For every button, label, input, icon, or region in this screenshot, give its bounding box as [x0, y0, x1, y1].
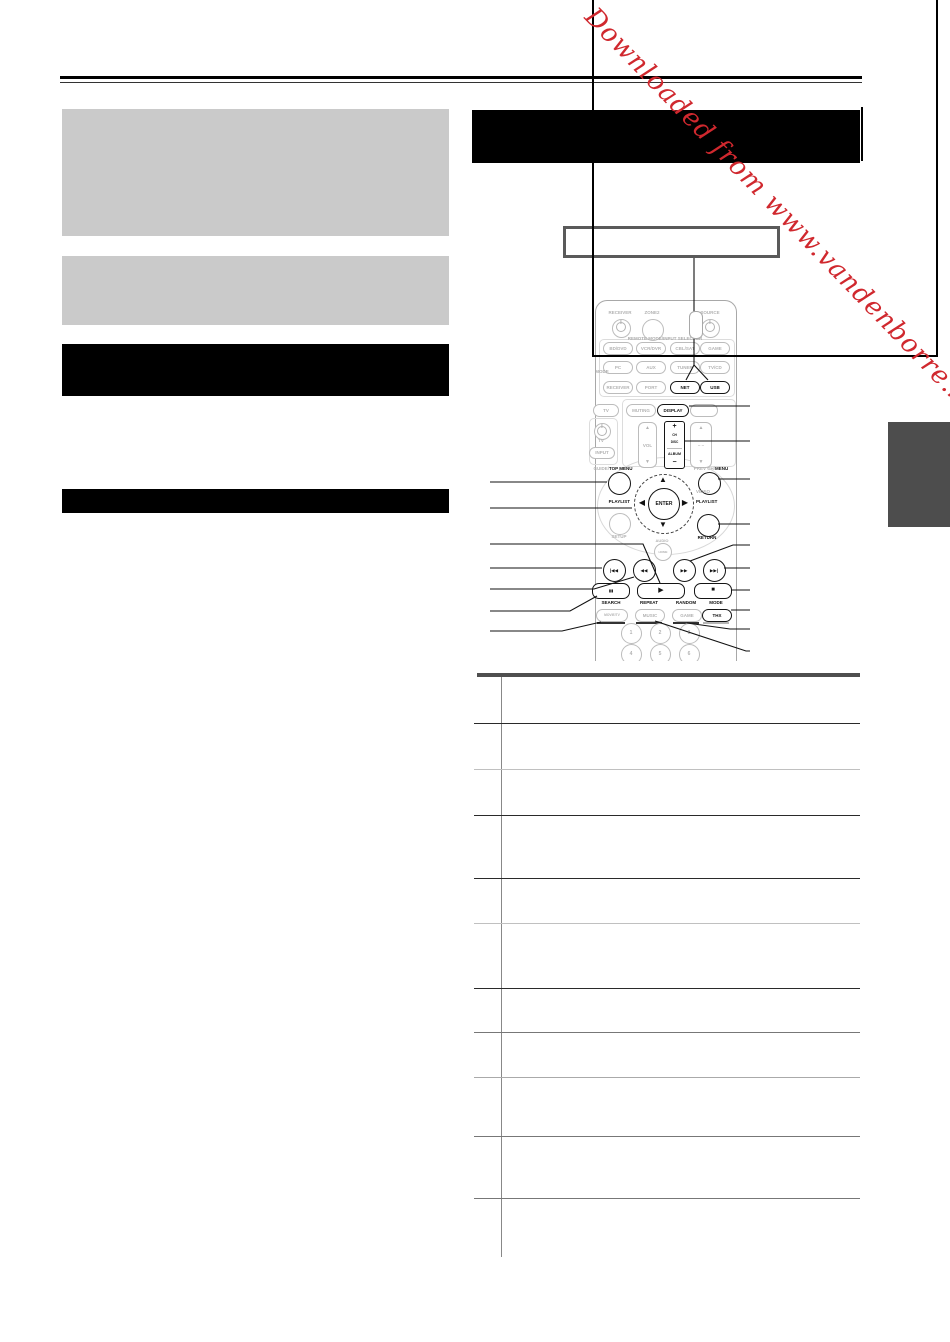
- thx-button: THX: [702, 609, 732, 622]
- tv-input-button: INPUT: [589, 447, 615, 459]
- port-button: PORT: [636, 381, 666, 394]
- album-label: ALBUM: [668, 452, 681, 456]
- return-button: [697, 514, 720, 537]
- table-row-line: [474, 923, 860, 924]
- top-menu-label: GUIDE/TOP MENU: [588, 466, 638, 471]
- dpad-left-icon: ◀: [636, 499, 648, 507]
- tuner-button: TUNER: [670, 361, 700, 374]
- guide-label: GUIDE/: [593, 466, 609, 471]
- table-row-line: [474, 815, 860, 816]
- repeat-label: REPEAT: [631, 600, 667, 605]
- table-row-line: [474, 723, 860, 724]
- table-header-bar: [477, 673, 860, 677]
- dpad-up-icon: ▲: [655, 476, 671, 484]
- tv-mode-button: TV: [593, 404, 619, 417]
- movie-tv-underline: [597, 622, 625, 625]
- top-menu-bold: TOP MENU: [609, 466, 633, 471]
- thx-underline: [703, 622, 729, 625]
- redacted-text-block: [62, 109, 449, 236]
- top-menu-button: [608, 472, 631, 495]
- illustration-crop: [585, 661, 765, 673]
- random-label: RANDOM: [668, 600, 704, 605]
- table-row-line: [474, 878, 860, 879]
- digit-3-button: 3: [679, 623, 700, 644]
- tv-cd-button: TV/CD: [700, 361, 730, 374]
- muting-button: MUTING: [626, 404, 656, 417]
- stop-button: ■: [694, 583, 732, 599]
- volume-up-icon: ▲: [645, 425, 650, 431]
- table-column-divider: [501, 677, 502, 1257]
- table-row-line: [474, 1032, 860, 1033]
- tv-label: TV: [589, 438, 613, 443]
- playlist-left-label: PLAYLIST: [592, 499, 630, 504]
- prev-ch-label: PREV CH/: [694, 466, 715, 471]
- aux-button: AUX: [636, 361, 666, 374]
- page-side-tab: [888, 422, 950, 527]
- disc-label: DISC: [671, 441, 679, 445]
- setup-button: [609, 513, 631, 535]
- next-track-button: ▶▶|: [703, 559, 726, 582]
- mode-group-label: MODE: [592, 369, 612, 374]
- return-label: RETURN: [692, 535, 722, 540]
- table-row-line: [474, 988, 860, 989]
- rewind-button: ◀◀: [633, 559, 656, 582]
- volume-label: VOL: [643, 443, 652, 448]
- playlist-right-label: PLAYLIST: [696, 499, 734, 504]
- section-heading-bar: [62, 344, 449, 396]
- dpad-right-icon: ▶: [679, 499, 691, 507]
- manual-page: RECEIVER ZONE2 SOURCE REMOTE MODE/INPUT …: [0, 0, 950, 1342]
- game-mode-button: GAME: [672, 609, 702, 622]
- menu-label: PREV CH/MENU: [686, 466, 736, 471]
- dpad-down-icon: ▼: [655, 521, 671, 529]
- preset-rocker: ▲ – – ▼: [690, 422, 712, 468]
- ch-label: CH: [672, 434, 677, 438]
- subsection-heading-bar: [62, 489, 449, 513]
- album-plus: +: [672, 424, 676, 430]
- usb-button: USB: [700, 381, 730, 394]
- tv-power-button: [594, 423, 611, 440]
- video-label: VIDEO: [688, 489, 718, 494]
- table-row-line: [474, 769, 860, 770]
- setup-label: SETUP: [605, 534, 633, 539]
- net-button: NET: [670, 381, 700, 394]
- preset-down-icon: ▼: [699, 459, 704, 465]
- movie-tv-button: MOVIE/TV: [596, 609, 628, 622]
- table-row-line: [474, 1136, 860, 1137]
- callout-pause: [490, 596, 597, 611]
- menu-bold: MENU: [715, 466, 728, 471]
- display-button: DISPLAY: [657, 404, 689, 417]
- preset-dashes: – –: [698, 443, 704, 448]
- album-rocker: + CH DISC ALBUM −: [664, 421, 685, 469]
- digit-1-button: 1: [621, 623, 642, 644]
- table-row-line: [474, 1198, 860, 1199]
- search-label: SEARCH: [593, 600, 629, 605]
- pause-button: ▮▮: [592, 583, 630, 599]
- power-icon: [597, 426, 607, 436]
- volume-rocker: ▲ VOL ▼: [638, 422, 657, 468]
- blank-button: [690, 404, 718, 417]
- play-button: ▶: [637, 583, 685, 599]
- album-minus: −: [672, 460, 676, 466]
- previous-track-button: |◀◀: [603, 559, 626, 582]
- fast-forward-button: ▶▶: [673, 559, 696, 582]
- table-row-line: [474, 1077, 860, 1078]
- rocker-divider: [667, 448, 682, 449]
- receiver-mode-button: RECEIVER: [603, 381, 633, 394]
- volume-down-icon: ▼: [645, 459, 650, 465]
- enter-button: ENTER: [648, 488, 680, 520]
- audio-label: AUDIO: [650, 538, 674, 543]
- digit-2-button: 2: [650, 623, 671, 644]
- callout-movie-tv: [490, 622, 601, 631]
- mode-label-bottom: MODE: [701, 600, 731, 605]
- home-button: HOME: [654, 543, 672, 561]
- music-button: MUSIC: [635, 609, 665, 622]
- preset-up-icon: ▲: [699, 425, 704, 431]
- redacted-text-block: [62, 256, 449, 325]
